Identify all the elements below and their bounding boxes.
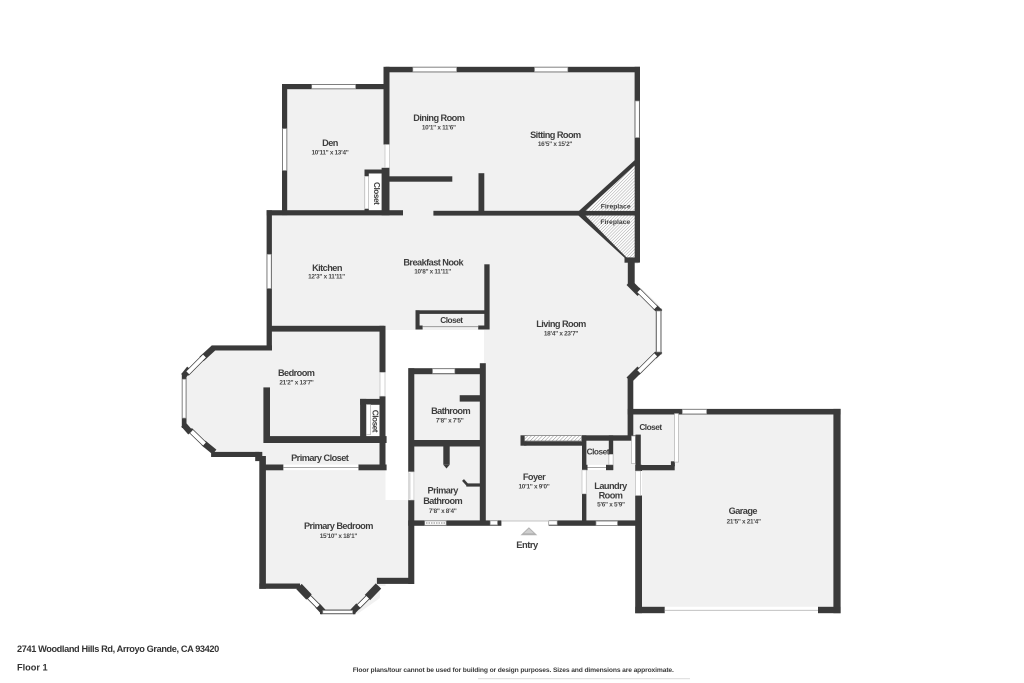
svg-text:10’1" x 9’0": 10’1" x 9’0" bbox=[519, 484, 550, 491]
svg-text:Closet: Closet bbox=[372, 182, 382, 205]
svg-text:10’8" x 11’11": 10’8" x 11’11" bbox=[414, 268, 451, 275]
svg-text:Den: Den bbox=[322, 138, 339, 148]
svg-text:Breakfast Nook: Breakfast Nook bbox=[403, 258, 464, 268]
svg-text:Kitchen: Kitchen bbox=[312, 263, 343, 273]
svg-text:2741 Woodland Hills Rd, Arroyo: 2741 Woodland Hills Rd, Arroyo Grande, C… bbox=[17, 644, 219, 654]
svg-text:Foyer: Foyer bbox=[523, 472, 546, 482]
svg-text:Garage: Garage bbox=[729, 506, 758, 516]
svg-text:Bathroom: Bathroom bbox=[423, 496, 462, 506]
svg-text:Fireplace: Fireplace bbox=[601, 203, 631, 210]
svg-text:Floor 1: Floor 1 bbox=[17, 662, 48, 672]
svg-text:Primary Closet: Primary Closet bbox=[291, 453, 349, 463]
svg-text:Fireplace: Fireplace bbox=[600, 219, 630, 226]
svg-text:21’5" x 21’4": 21’5" x 21’4" bbox=[727, 518, 761, 525]
svg-text:Laundry: Laundry bbox=[594, 481, 628, 491]
svg-text:Bedroom: Bedroom bbox=[278, 368, 315, 378]
svg-text:Closet: Closet bbox=[440, 315, 463, 325]
svg-text:Dining Room: Dining Room bbox=[413, 113, 464, 123]
svg-text:10’1" x 11’6": 10’1" x 11’6" bbox=[422, 125, 456, 132]
svg-text:18’4" x 23’7": 18’4" x 23’7" bbox=[544, 331, 578, 338]
svg-text:Room: Room bbox=[599, 491, 623, 501]
svg-text:Primary Bedroom: Primary Bedroom bbox=[304, 521, 373, 531]
svg-text:Sitting Room: Sitting Room bbox=[530, 130, 581, 140]
svg-text:Bathroom: Bathroom bbox=[431, 406, 470, 416]
svg-text:5’6" x 5’9": 5’6" x 5’9" bbox=[597, 501, 625, 508]
svg-text:Closet: Closet bbox=[639, 422, 662, 432]
svg-text:Primary: Primary bbox=[428, 486, 460, 496]
svg-text:16’5" x 15’2": 16’5" x 15’2" bbox=[538, 141, 572, 148]
svg-text:7’8" x 7’5": 7’8" x 7’5" bbox=[436, 417, 464, 424]
svg-text:Entry: Entry bbox=[516, 539, 539, 550]
svg-text:Living Room: Living Room bbox=[536, 319, 586, 329]
svg-text:10’11" x 13’4": 10’11" x 13’4" bbox=[311, 150, 348, 157]
svg-text:Closet: Closet bbox=[587, 447, 610, 457]
svg-text:Floor plans/tour cannot be use: Floor plans/tour cannot be used for buil… bbox=[353, 667, 674, 674]
svg-text:12’3" x 11’11": 12’3" x 11’11" bbox=[308, 274, 345, 281]
svg-text:Closet: Closet bbox=[371, 410, 381, 433]
svg-text:21’2" x 13’7": 21’2" x 13’7" bbox=[279, 379, 313, 386]
svg-text:15’10" x 18’1": 15’10" x 18’1" bbox=[320, 533, 358, 540]
svg-text:7’8" x 8’4": 7’8" x 8’4" bbox=[429, 508, 457, 515]
